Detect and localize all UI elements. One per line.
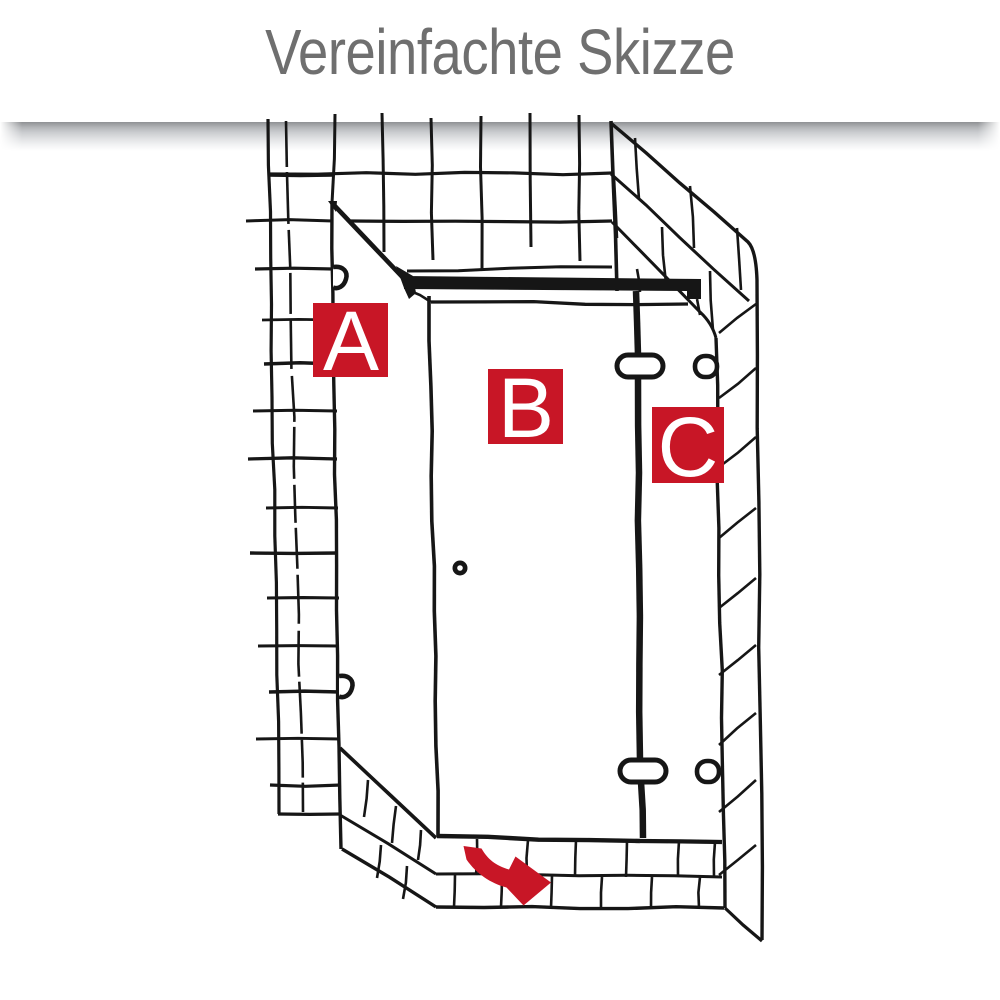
svg-text:A: A [323,294,379,388]
svg-text:B: B [498,361,554,455]
svg-text:C: C [658,400,719,494]
